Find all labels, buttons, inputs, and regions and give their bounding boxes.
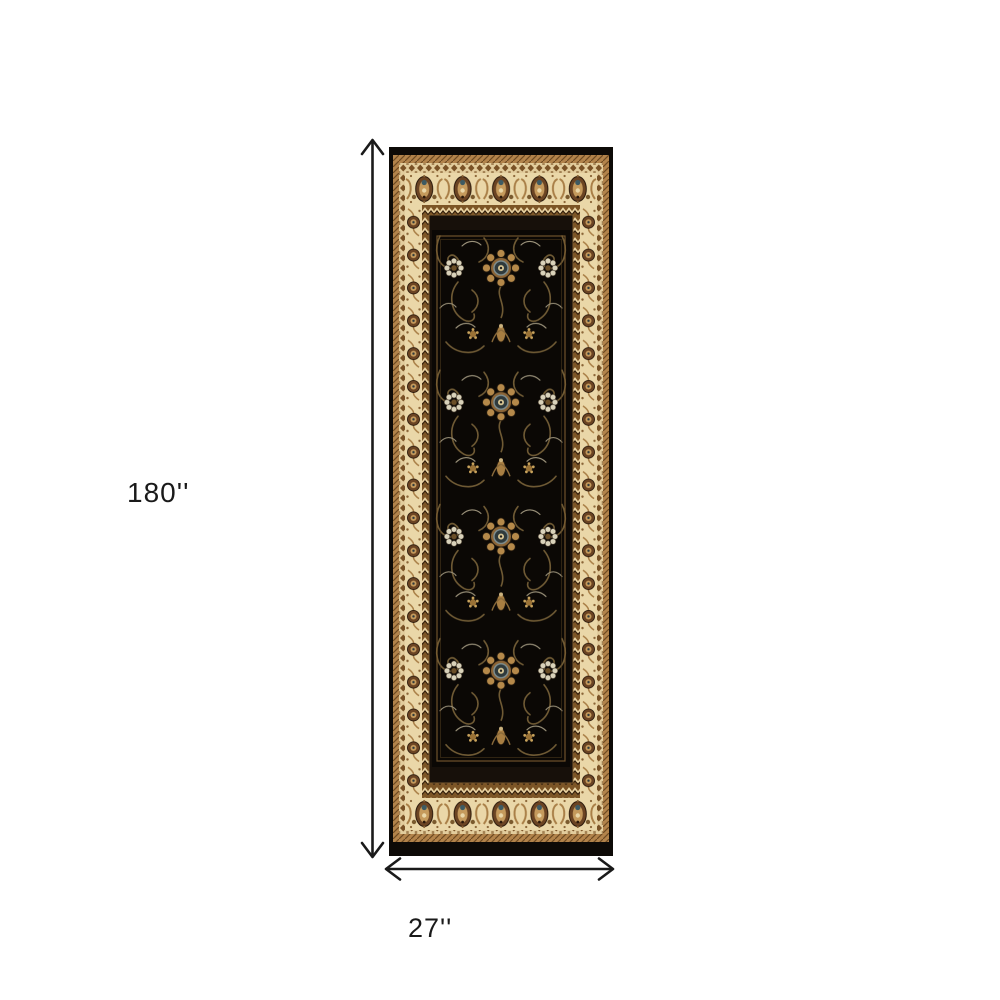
height-dimension-label: 180'' [127, 477, 189, 509]
width-dimension-label: 27'' [408, 913, 452, 944]
height-dimension-arrow [362, 140, 383, 857]
rug-illustration [389, 147, 613, 856]
rug-field [432, 230, 570, 767]
product-dimension-diagram: 180'' 27'' [0, 0, 1000, 1000]
width-dimension-arrow [386, 859, 613, 880]
rug-product-image [389, 147, 613, 856]
